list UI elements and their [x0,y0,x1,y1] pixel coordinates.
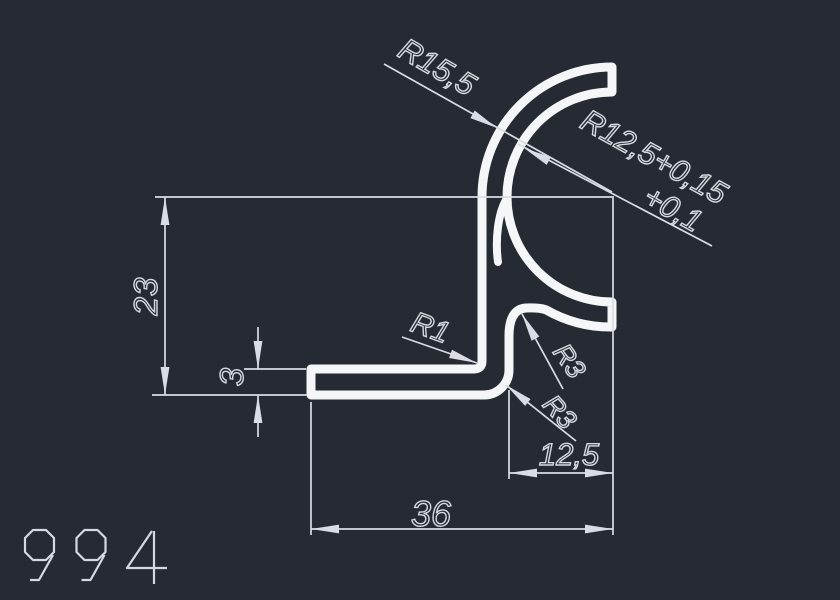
svg-text:3: 3 [213,367,250,386]
svg-text:36: 36 [411,493,452,534]
svg-text:12,5: 12,5 [539,437,600,472]
svg-text:23: 23 [127,277,164,317]
